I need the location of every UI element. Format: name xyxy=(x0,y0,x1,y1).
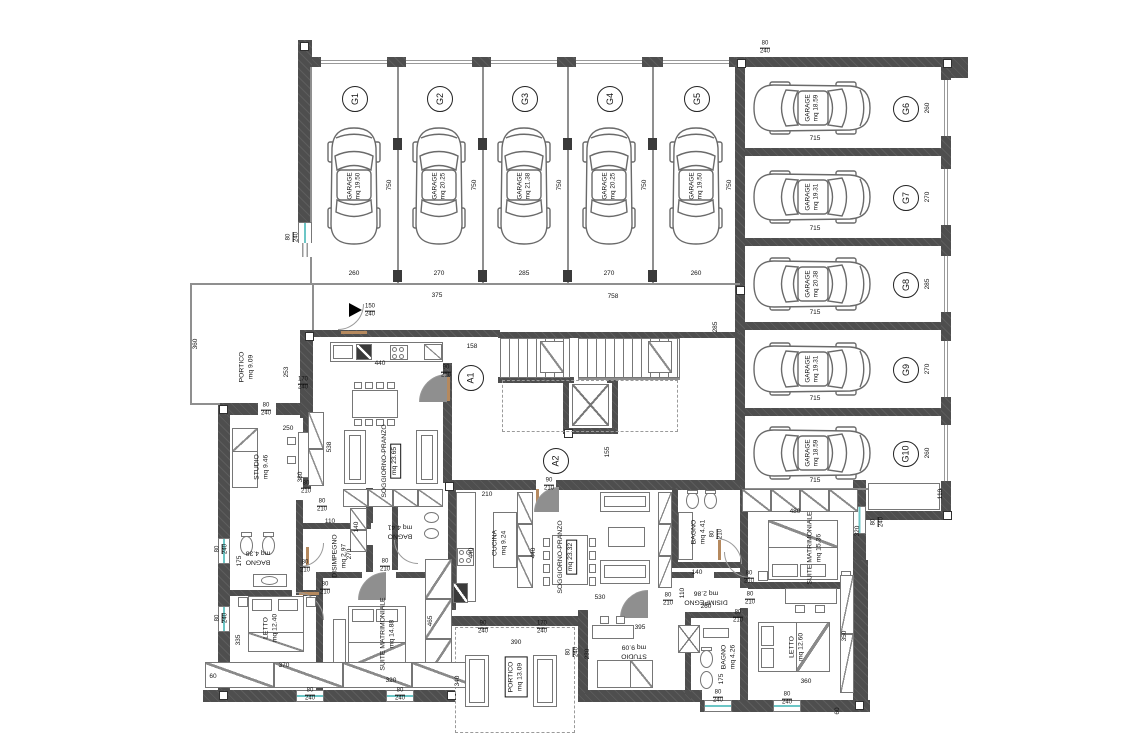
furniture-storage-hatch xyxy=(742,489,771,512)
furniture-chair xyxy=(795,605,805,613)
door-size-value: 210 xyxy=(380,565,390,573)
room-label: CUCINAmq 9.24 xyxy=(492,530,509,556)
door-size-label: 80240 xyxy=(305,688,315,703)
door-size-label: 80240 xyxy=(871,517,886,527)
dimension-label: 253 xyxy=(284,367,291,378)
garage-number-text: G2 xyxy=(435,93,445,105)
door-size-label: 80210 xyxy=(320,582,330,597)
garage-number-text: G8 xyxy=(901,279,911,291)
room-label-text: mq 9.24 xyxy=(501,531,509,556)
room-label: STUDIOmq 9.09 xyxy=(621,643,647,660)
door-size-value: 240 xyxy=(261,409,271,417)
furniture-chair xyxy=(543,577,550,586)
garage-number-text: G5 xyxy=(692,93,702,105)
wall-segment xyxy=(853,560,868,712)
furniture-burner xyxy=(399,347,404,352)
furniture-burner xyxy=(392,354,397,359)
furniture-sofa-seat xyxy=(349,435,361,480)
room-label-text: mq 14.88 xyxy=(389,620,397,648)
garage-area-label-area: mq 18.59 xyxy=(812,95,820,122)
door-size-value: 80 xyxy=(871,519,878,526)
dimension-label: 375 xyxy=(432,293,443,300)
dimension-label: 340 xyxy=(455,676,462,687)
door-size-value: 80 xyxy=(215,615,222,622)
door-size-value: 210 xyxy=(441,371,451,379)
garage-area-label: GARAGEmq 19.50 xyxy=(346,172,361,199)
room-label: BAGNOmq 4.26 xyxy=(721,645,738,670)
room-label: BAGNOmq 4.41 xyxy=(691,520,708,545)
corner-joint xyxy=(943,511,952,520)
corner-joint xyxy=(300,42,309,51)
door-size-value: 80 xyxy=(735,610,742,617)
dimension-label: 260 xyxy=(925,103,932,114)
dimension-label: 440 xyxy=(375,361,386,368)
furniture-chair xyxy=(589,538,596,547)
door-size-value: 210 xyxy=(544,484,554,492)
room-label-text: BAGNO xyxy=(388,532,413,540)
garage-number-text: G6 xyxy=(901,103,911,115)
door-size-label: 80240 xyxy=(782,692,792,707)
dimension-label: 140 xyxy=(692,570,703,577)
garage-area-label-label: GARAGE xyxy=(601,172,609,199)
furniture-desk xyxy=(785,588,837,604)
door-size-label: 80240 xyxy=(261,403,271,418)
garage-door xyxy=(941,169,951,225)
pillar xyxy=(648,270,657,282)
garage-area-label-label: GARAGE xyxy=(804,439,812,466)
garage-area-label-label: GARAGE xyxy=(688,172,696,199)
line xyxy=(190,403,220,405)
door-size-value: 240 xyxy=(292,232,300,242)
furniture-nightstand xyxy=(238,597,248,607)
line xyxy=(312,283,740,285)
furniture-wc-tank xyxy=(241,532,252,537)
door-size-label: 80240 xyxy=(215,613,230,623)
line xyxy=(652,67,654,283)
furniture-washbasin xyxy=(424,512,439,523)
garage-number-text: G7 xyxy=(901,192,911,204)
room-label-text: DISIMPEGNO xyxy=(332,534,340,577)
floor-plan-canvas: G1GARAGEmq 19.50750260G2GARAGEmq 20.2575… xyxy=(0,0,1127,751)
dimension-label: 270 xyxy=(604,271,615,278)
door-size-value: 80 xyxy=(303,481,310,488)
room-label-text: SOGGIORNO-PRANZO xyxy=(381,424,389,497)
garage-area-label: GARAGEmq 19.31 xyxy=(804,355,819,382)
door-size-label: 170240 xyxy=(298,377,308,392)
garage-area-label-area: mq 19.50 xyxy=(696,173,704,200)
garage-area-label-label: GARAGE xyxy=(346,172,354,199)
room-label-text: mq 23.32 xyxy=(566,540,577,574)
room-label-text: mq 4.38 xyxy=(246,549,271,557)
door-size-label: 90240 xyxy=(478,621,488,636)
furniture-burner xyxy=(459,558,464,563)
garage-number: G6 xyxy=(893,96,919,122)
room-label-text: BAGNO xyxy=(691,520,699,545)
garage-number: G3 xyxy=(512,86,538,112)
door-size-label: 80240 xyxy=(713,690,723,705)
furniture-wardrobe xyxy=(308,412,324,449)
dimension-label: 250 xyxy=(283,426,294,433)
furniture-dishwasher xyxy=(424,344,442,360)
room-label-text: mq 4.41 xyxy=(388,523,413,531)
dimension-label: 155 xyxy=(605,447,612,458)
pillar xyxy=(648,138,657,150)
furniture-tap xyxy=(705,490,716,494)
dimension-label: 750 xyxy=(472,180,479,191)
garage-area-label-area: mq 20.38 xyxy=(812,271,820,298)
room-label-text: mq 9.09 xyxy=(248,355,256,380)
dimension-label: 750 xyxy=(727,180,734,191)
garage-door xyxy=(576,57,642,67)
furniture-burner xyxy=(399,354,404,359)
garage-area-label: GARAGEmq 19.31 xyxy=(804,183,819,210)
furniture-pillow xyxy=(761,626,774,646)
garage-door xyxy=(663,57,729,67)
dimension-label: 285 xyxy=(713,322,720,333)
pillar xyxy=(393,270,402,282)
door-size-value: 240 xyxy=(478,627,488,635)
door-size-label: 80210 xyxy=(300,560,310,575)
garage-number-text: G1 xyxy=(350,93,360,105)
garage-number-text: G4 xyxy=(605,93,615,105)
garage-door xyxy=(941,425,951,481)
garage-number-text: G9 xyxy=(901,364,911,376)
door-leaf xyxy=(341,331,367,334)
furniture-pergola-hatch xyxy=(343,662,412,688)
garage-door xyxy=(321,57,387,67)
door-size-label: 80240 xyxy=(566,647,581,657)
door-size-value: 210 xyxy=(744,577,754,585)
garage-area-label: GARAGEmq 21.38 xyxy=(516,172,531,199)
furniture-chair xyxy=(600,616,609,624)
dimension-label: 110 xyxy=(325,519,335,526)
apartment-number: A1 xyxy=(458,365,484,391)
furniture-pillow xyxy=(761,648,774,668)
door-swing-arc xyxy=(620,590,648,618)
dimension-label: 175 xyxy=(719,674,726,685)
furniture-wc-tank xyxy=(263,532,274,537)
door-size-value: 80 xyxy=(762,41,769,48)
furniture-chair xyxy=(616,616,625,624)
dimension-label: 285 xyxy=(925,279,932,290)
dimension-label: 750 xyxy=(387,180,394,191)
room-label-text: SUITE MATRIMONIALE xyxy=(380,597,388,670)
dimension-label: 750 xyxy=(642,180,649,191)
door-size-value: 170 xyxy=(298,377,308,384)
door-size-value: 80 xyxy=(322,582,329,589)
door-size-value: 80 xyxy=(566,649,573,656)
garage-area-label: GARAGEmq 18.59 xyxy=(804,94,819,121)
pillar xyxy=(393,138,402,150)
garage-number-text: G10 xyxy=(901,445,911,462)
door-size-value: 80 xyxy=(215,546,222,553)
furniture-burner xyxy=(466,558,471,563)
furniture-wc-tank xyxy=(701,647,712,651)
room-label-text: mq 4.26 xyxy=(730,645,738,670)
furniture-chair xyxy=(815,605,825,613)
room-label: SOGGIORNO-PRANZOmq 23.65 xyxy=(381,424,401,497)
furniture-tall-cabinet xyxy=(517,492,533,524)
furniture-vanity xyxy=(703,628,729,638)
pillar xyxy=(563,270,572,282)
furniture-armchair-seat xyxy=(469,659,485,703)
room-label-text: SUITE MATRIMONIALE xyxy=(807,511,815,584)
furniture-nightstand xyxy=(758,571,768,581)
door-size-value: 240 xyxy=(537,627,547,635)
door-size-value: 210 xyxy=(300,566,310,574)
door-size-value: 90 xyxy=(546,478,553,485)
dimension-label: 715 xyxy=(810,310,821,317)
dimension-label: 230 xyxy=(585,649,592,660)
furniture-sofa-seat xyxy=(604,496,646,507)
door-size-value: 80 xyxy=(747,592,754,599)
door-size-value: 80 xyxy=(397,688,404,695)
door-size-label: 80210 xyxy=(744,571,754,586)
door-size-value: 240 xyxy=(782,698,792,706)
line xyxy=(482,67,484,283)
furniture-pillow xyxy=(772,564,798,577)
furniture-wardrobe xyxy=(343,489,368,507)
furniture-dining-table xyxy=(352,390,398,418)
apartment-number: A2 xyxy=(543,448,569,474)
garage-door xyxy=(491,57,557,67)
dimension-label: 530 xyxy=(595,595,606,602)
door-opening xyxy=(298,243,312,257)
wall-segment xyxy=(735,285,745,488)
door-size-value: 240 xyxy=(877,517,885,527)
furniture-pillow xyxy=(252,599,272,611)
dimension-label: 175 xyxy=(237,556,244,567)
garage-area-label-label: GARAGE xyxy=(431,172,439,199)
furniture-kitchen-drainer xyxy=(356,344,372,360)
dimension-label: 390 xyxy=(511,640,522,647)
room-label-text: CUCINA xyxy=(492,530,500,556)
door-size-value: 80 xyxy=(710,531,717,538)
line xyxy=(567,67,569,283)
garage-area-label-label: GARAGE xyxy=(804,355,812,382)
garage-number: G1 xyxy=(342,86,368,112)
wall-segment xyxy=(366,545,373,572)
door-size-label: 90210 xyxy=(441,365,451,380)
corner-joint xyxy=(736,286,745,295)
furniture-chair xyxy=(543,551,550,560)
room-label: LETTOmq 12.60 xyxy=(789,633,806,661)
furniture-chair xyxy=(543,564,550,573)
furniture-shower xyxy=(678,625,700,653)
door-size-label: 90210 xyxy=(544,478,554,493)
room-label-text: mq 9.09 xyxy=(622,643,647,651)
dimension-label: 715 xyxy=(810,226,821,233)
door-size-label: 80210 xyxy=(663,593,673,608)
dimension-label: 110 xyxy=(680,588,687,598)
dimension-label: 440 xyxy=(469,548,476,559)
dimension-label: 270 xyxy=(434,271,445,278)
door-size-label: 80210 xyxy=(710,529,725,539)
wall-segment xyxy=(740,57,950,67)
furniture-washbasin xyxy=(704,492,717,509)
garage-number: G10 xyxy=(893,441,919,467)
door-size-value: 170 xyxy=(537,621,547,628)
garage-door xyxy=(941,256,951,312)
garage-area-label: GARAGEmq 19.50 xyxy=(688,172,703,199)
room-label: SUITE MATRIMONIALEmq 15.36 xyxy=(807,511,824,584)
door-size-value: 210 xyxy=(320,588,330,596)
dimension-label: 260 xyxy=(925,448,932,459)
dimension-label: 270 xyxy=(347,549,354,560)
door-size-value: 210 xyxy=(716,529,724,539)
furniture-nightstand xyxy=(306,597,316,607)
dimension-label: 538 xyxy=(327,442,334,453)
dimension-label: 270 xyxy=(925,364,932,375)
garage-area-label-label: GARAGE xyxy=(804,183,812,210)
door-size-label: 80210 xyxy=(745,592,755,607)
furniture-chair xyxy=(589,564,596,573)
door-size-label: 80240 xyxy=(760,41,770,56)
garage-area-label-label: GARAGE xyxy=(516,172,524,199)
door-size-value: 240 xyxy=(395,694,405,702)
room-label-text: mq 2.86 xyxy=(694,589,719,597)
room-label: BAGNOmq 4.38 xyxy=(246,549,271,566)
furniture-chair xyxy=(287,437,296,445)
door-size-value: 80 xyxy=(784,692,791,699)
door-size-value: 210 xyxy=(663,599,673,607)
room-label: PORTICOmq 9.09 xyxy=(239,352,256,383)
furniture-chair xyxy=(589,551,596,560)
dimension-label: 260 xyxy=(691,271,702,278)
dimension-label: 750 xyxy=(557,180,564,191)
door-size-value: 90 xyxy=(443,365,450,372)
furniture-chair xyxy=(376,382,384,389)
door-size-value: 240 xyxy=(760,47,770,55)
door-size-label: 80240 xyxy=(286,232,301,242)
garage-area-label-area: mq 19.31 xyxy=(812,356,820,383)
furniture-tall-cabinet xyxy=(517,556,533,588)
furniture-sofa-seat xyxy=(604,565,646,578)
dimension-label: 270 xyxy=(925,192,932,203)
room-label: STUDIOmq 9.46 xyxy=(254,454,271,480)
door-size-value: 240 xyxy=(305,694,315,702)
garage-door xyxy=(406,57,472,67)
room-label-text: PORTICO xyxy=(508,662,516,693)
room-label-text: LETTO xyxy=(789,636,797,658)
furniture-pillow xyxy=(278,599,298,611)
garage-number-text: G3 xyxy=(520,93,530,105)
furniture-elevator-shaft xyxy=(572,384,609,426)
dimension-label: 210 xyxy=(482,492,493,499)
garage-area-label: GARAGEmq 20.25 xyxy=(431,172,446,199)
furniture-storage-hatch xyxy=(829,489,858,512)
dimension-label: 260 xyxy=(349,271,360,278)
furniture-coffee-table xyxy=(608,527,645,547)
wall-segment xyxy=(735,57,745,285)
dimension-label: 320 xyxy=(386,678,397,685)
room-label-text: mq 12.40 xyxy=(272,614,280,642)
dimension-label: 440 xyxy=(531,548,538,559)
garage-door xyxy=(941,341,951,397)
wall-segment xyxy=(203,690,455,702)
wall-segment xyxy=(448,480,536,490)
furniture-balcony-slab xyxy=(868,483,940,510)
door-size-value: 90 xyxy=(480,621,487,628)
door-swing-arc xyxy=(358,572,386,600)
room-label-text: BAGNO xyxy=(246,558,271,566)
room-label-text: PORTICO xyxy=(239,352,247,383)
wall-segment xyxy=(745,238,941,246)
door-size-value: 210 xyxy=(733,616,743,624)
furniture-chair xyxy=(287,456,296,464)
garage-number: G8 xyxy=(893,272,919,298)
room-label: PORTICOmq 13.09 xyxy=(505,657,528,698)
furniture-chair xyxy=(365,382,373,389)
door-size-value: 80 xyxy=(746,571,753,578)
door-size-label: 80240 xyxy=(215,544,230,554)
room-label-text: mq 4.41 xyxy=(700,520,708,545)
garage-area-label: GARAGEmq 20.25 xyxy=(601,172,616,199)
door-size-value: 80 xyxy=(307,688,314,695)
room-label-text: STUDIO xyxy=(254,454,262,480)
wall-segment xyxy=(300,330,313,418)
door-size-value: 210 xyxy=(745,598,755,606)
furniture-chair xyxy=(365,419,373,426)
door-size-value: 80 xyxy=(286,234,293,241)
dimension-label: 395 xyxy=(635,625,646,632)
door-size-value: 80 xyxy=(263,403,270,410)
wall-segment xyxy=(430,616,580,626)
pillar xyxy=(478,138,487,150)
furniture-wardrobe xyxy=(840,575,854,634)
furniture-chair xyxy=(354,382,362,389)
garage-number: G5 xyxy=(684,86,710,112)
door-size-value: 240 xyxy=(365,310,375,318)
room-label: SUITE MATRIMONIALEmq 14.88 xyxy=(380,597,397,670)
room-label-text: STUDIO xyxy=(621,652,647,660)
room-label-text: SOGGIORNO-PRANZO xyxy=(557,520,565,593)
door-leaf xyxy=(447,377,450,401)
wall-segment xyxy=(745,322,941,330)
furniture-washbasin xyxy=(261,576,278,585)
garage-area-label-label: GARAGE xyxy=(804,270,812,297)
room-label-text: BAGNO xyxy=(721,645,729,670)
dimension-label: 285 xyxy=(519,271,530,278)
line xyxy=(397,67,399,283)
garage-door xyxy=(941,80,951,136)
furniture-armchair-seat xyxy=(537,659,553,703)
dimension-label: 715 xyxy=(810,136,821,143)
room-label-text: mq 9.46 xyxy=(263,455,271,480)
door-size-value: 150 xyxy=(365,304,375,311)
door-size-value: 240 xyxy=(298,383,308,391)
furniture-burner xyxy=(459,550,464,555)
furniture-pillow xyxy=(352,609,374,622)
furniture-daybed-pillow xyxy=(232,428,258,452)
garage-number: G7 xyxy=(893,185,919,211)
garage-area-label: GARAGEmq 18.59 xyxy=(804,439,819,466)
garage-area-label: GARAGEmq 20.38 xyxy=(804,270,819,297)
garage-area-label-area: mq 19.31 xyxy=(812,184,820,211)
furniture-stair-direction-line xyxy=(648,341,672,373)
dimension-label: 465 xyxy=(428,616,435,627)
garage-area-label-area: mq 19.50 xyxy=(354,173,362,200)
door-size-label: 150240 xyxy=(365,304,375,319)
garage-area-label-area: mq 21.38 xyxy=(524,173,532,200)
furniture-wardrobe xyxy=(840,634,854,693)
furniture-bed-cover xyxy=(630,660,653,688)
door-size-value: 80 xyxy=(302,560,309,567)
corner-joint xyxy=(737,59,746,68)
apartment-number-text: A1 xyxy=(466,372,476,383)
furniture-kitchen-sink xyxy=(453,583,468,603)
apartment-number-text: A2 xyxy=(551,455,561,466)
